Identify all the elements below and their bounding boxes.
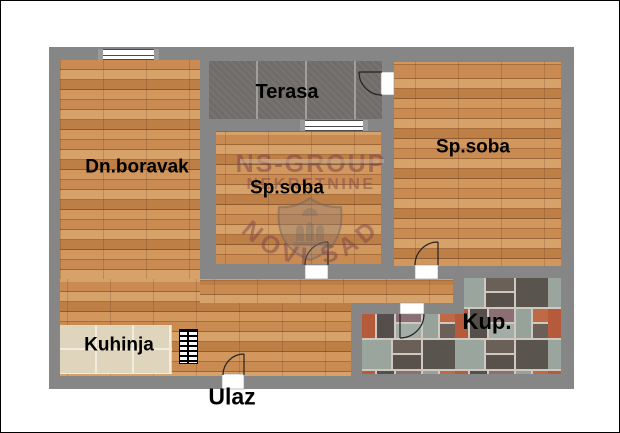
room-label-bedroom2: Sp.soba bbox=[436, 138, 510, 157]
floorplan-image: NS-GROUP NEKRETNINE NOVI SAD Terasa Dn.b… bbox=[0, 0, 620, 433]
room-label-kitchen: Kuhinja bbox=[84, 336, 154, 355]
room-bathroom-floor bbox=[362, 278, 561, 374]
room-label-living: Dn.boravak bbox=[85, 158, 188, 177]
room-label-entrance: Ulaz bbox=[208, 386, 255, 409]
radiator-icon bbox=[179, 329, 198, 364]
room-bedroom2-floor bbox=[394, 62, 561, 266]
window-icon-terrace bbox=[300, 120, 368, 131]
room-label-bathroom: Kup. bbox=[463, 311, 512, 333]
room-label-terrace: Terasa bbox=[255, 82, 318, 102]
window-icon-living bbox=[98, 49, 159, 60]
room-label-bedroom1: Sp.soba bbox=[250, 179, 324, 198]
